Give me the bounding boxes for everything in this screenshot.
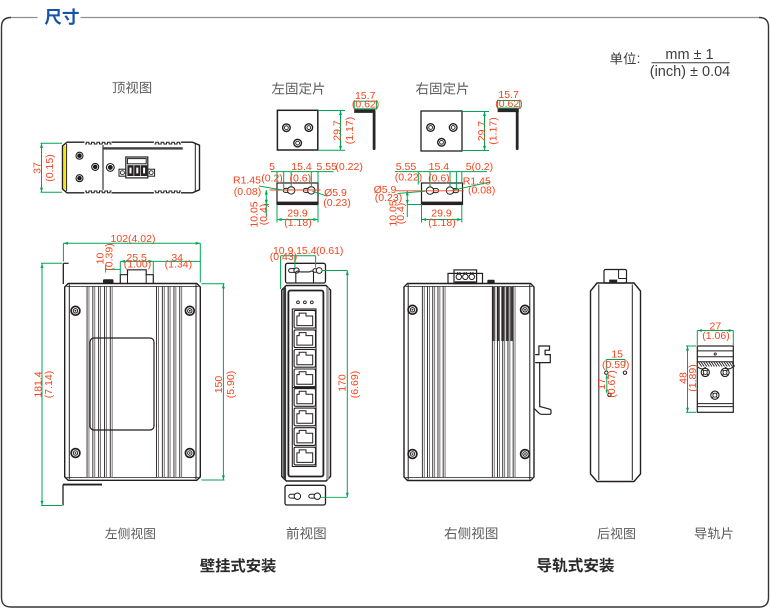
svg-text:(0.23): (0.23) (323, 197, 350, 209)
svg-text:(0.62): (0.62) (495, 98, 522, 110)
svg-text:102(4.02): 102(4.02) (111, 233, 156, 245)
svg-text:5: 5 (269, 161, 275, 173)
svg-text:(0.6): (0.6) (428, 173, 450, 185)
svg-text:(1.17): (1.17) (344, 117, 356, 144)
svg-text:(0.6): (0.6) (290, 173, 312, 185)
svg-text:(1.18): (1.18) (428, 217, 455, 229)
svg-text:150: 150 (213, 376, 225, 394)
svg-text:15.4: 15.4 (429, 161, 450, 173)
svg-text:(0.4): (0.4) (258, 204, 270, 226)
svg-text:(inch) ± 0.04: (inch) ± 0.04 (650, 64, 731, 80)
svg-text:(0.61): (0.61) (316, 245, 343, 257)
svg-text:(0.59): (0.59) (602, 359, 629, 371)
svg-text:(0.2): (0.2) (261, 173, 283, 185)
svg-text:15.4: 15.4 (291, 161, 312, 173)
svg-text:mm ± 1: mm ± 1 (665, 47, 713, 63)
svg-text:(1.00): (1.00) (124, 258, 151, 270)
svg-text:170: 170 (337, 374, 349, 392)
svg-text:(1.18): (1.18) (284, 217, 311, 229)
svg-text:(1.17): (1.17) (488, 117, 500, 144)
svg-text:(0.22): (0.22) (335, 161, 362, 173)
svg-text:(1.34): (1.34) (165, 258, 192, 270)
svg-text:(7.14): (7.14) (43, 371, 55, 398)
svg-text:(0.15): (0.15) (44, 154, 56, 181)
svg-text::: : (637, 51, 641, 66)
svg-text:29.7: 29.7 (331, 120, 343, 141)
svg-text:5(0.2): 5(0.2) (466, 161, 493, 173)
svg-text:(0.39): (0.39) (103, 243, 115, 270)
svg-text:15.4: 15.4 (296, 245, 317, 257)
svg-text:29.7: 29.7 (476, 121, 488, 142)
svg-text:(5.90): (5.90) (225, 371, 237, 398)
svg-text:R1.45: R1.45 (233, 175, 261, 187)
svg-text:37: 37 (31, 162, 43, 174)
svg-text:(0.62): (0.62) (352, 98, 379, 110)
svg-text:(0.43): (0.43) (270, 251, 297, 263)
svg-text:(0.08): (0.08) (234, 186, 261, 198)
svg-text:(0.4): (0.4) (395, 203, 407, 225)
svg-text:(0.22): (0.22) (395, 172, 422, 184)
svg-text:(1.89): (1.89) (687, 364, 699, 391)
svg-text:(0.67): (0.67) (606, 370, 618, 397)
svg-text:(6.69): (6.69) (349, 371, 361, 398)
svg-text:(1.06): (1.06) (702, 330, 729, 342)
svg-text:5.55: 5.55 (317, 161, 338, 173)
